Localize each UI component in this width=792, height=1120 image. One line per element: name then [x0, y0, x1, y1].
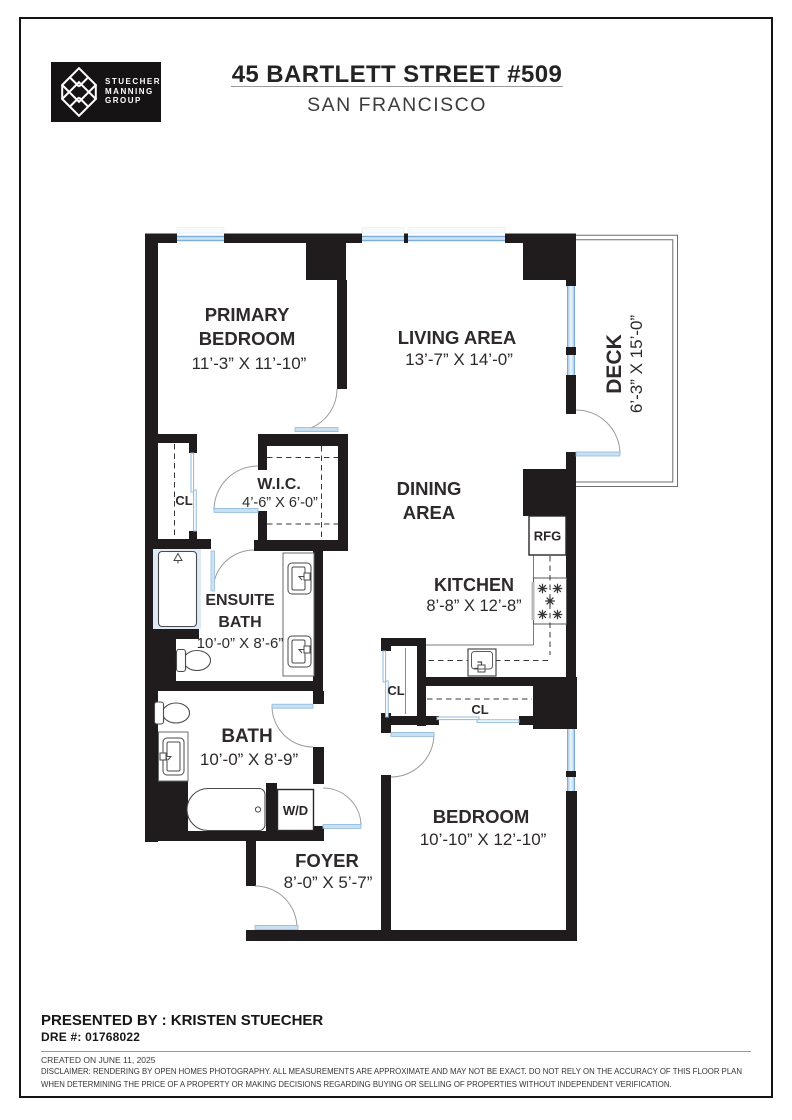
svg-text:KITCHEN: KITCHEN — [434, 575, 514, 595]
svg-text:6’-3” X 15’-0”: 6’-3” X 15’-0” — [627, 315, 646, 414]
svg-text:ENSUITE: ENSUITE — [205, 592, 275, 609]
svg-text:10’-0” X 8’-9”: 10’-0” X 8’-9” — [200, 750, 299, 769]
svg-text:DECK: DECK — [603, 334, 626, 394]
svg-text:RFG: RFG — [534, 529, 561, 544]
svg-text:FOYER: FOYER — [295, 850, 359, 871]
svg-text:BATH: BATH — [218, 614, 261, 631]
svg-text:8’-8” X 12’-8”: 8’-8” X 12’-8” — [426, 597, 521, 615]
svg-text:11’-3” X 11’-10”: 11’-3” X 11’-10” — [192, 354, 307, 373]
svg-text:10’-0” X 8’-6”: 10’-0” X 8’-6” — [197, 635, 284, 652]
svg-text:LIVING AREA: LIVING AREA — [398, 327, 517, 348]
svg-text:10’-10” X 12’-10”: 10’-10” X 12’-10” — [420, 830, 547, 849]
svg-text:W.I.C.: W.I.C. — [257, 476, 301, 493]
svg-text:CL: CL — [387, 683, 404, 698]
svg-text:13’-7” X 14’-0”: 13’-7” X 14’-0” — [405, 350, 513, 369]
svg-text:DINING: DINING — [397, 478, 462, 499]
svg-text:4’-6” X 6’-0”: 4’-6” X 6’-0” — [242, 495, 318, 511]
svg-text:8’-0” X 5’-7”: 8’-0” X 5’-7” — [284, 873, 373, 892]
svg-text:BEDROOM: BEDROOM — [199, 328, 296, 349]
svg-text:BEDROOM: BEDROOM — [433, 806, 530, 827]
svg-text:BATH: BATH — [221, 726, 272, 747]
svg-text:AREA: AREA — [403, 502, 455, 523]
svg-text:W/D: W/D — [283, 803, 308, 818]
svg-text:PRIMARY: PRIMARY — [205, 304, 290, 325]
svg-text:CL: CL — [471, 702, 488, 717]
svg-text:CL: CL — [175, 493, 192, 508]
